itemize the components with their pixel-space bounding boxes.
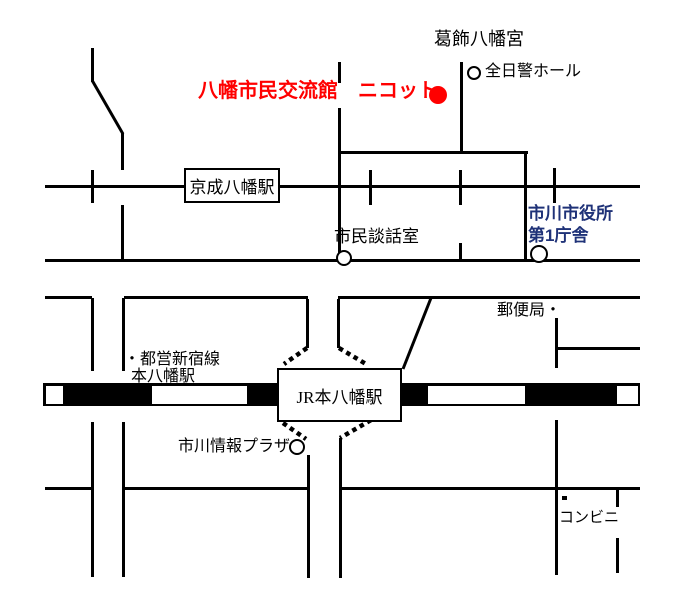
- post-office-branch-road: [557, 347, 640, 350]
- bend-street-diagonal: [93, 81, 124, 134]
- cross-tick-a1: [91, 170, 94, 203]
- road-d-west: [45, 487, 93, 490]
- road-a: [45, 185, 640, 188]
- label-toei-shinjuku-line: ・都営新宿線: [124, 351, 220, 369]
- cross-tick-b1: [459, 243, 462, 262]
- jr-entrance-dotted-ne: [339, 348, 366, 364]
- conbini-street-lower: [616, 538, 619, 573]
- rail-cap-right: [638, 383, 641, 406]
- road-c-west: [45, 296, 92, 299]
- jr-entrance-dotted-se: [340, 420, 371, 438]
- label-conbini: コンビニ: [559, 510, 619, 527]
- label-moto-yawata-station: 本八幡駅: [131, 368, 195, 386]
- shrine-street-east: [460, 62, 463, 154]
- station-corridor-left-upper: [306, 299, 309, 348]
- cross-tick-a2: [369, 170, 372, 205]
- road-d-mid: [125, 487, 308, 490]
- joho-plaza-circle: [289, 439, 305, 455]
- shimin-danwashitsu-circle: [336, 250, 352, 266]
- bend-street-lower: [121, 205, 124, 262]
- conbini-street-upper: [616, 490, 619, 507]
- station-corridor-right-upper: [337, 299, 340, 348]
- map-canvas: 京成八幡駅JR本八幡駅葛飾八幡宮全日警ホール八幡市民交流館 ニコット市民談話室市…: [0, 0, 700, 610]
- cross-tick-a3: [459, 170, 462, 205]
- jr-entrance-dotted-sw: [283, 423, 306, 439]
- bend-street-mid: [121, 133, 124, 170]
- label-ichikawa-city-hall: 市川市役所 第1庁舎: [528, 203, 613, 247]
- post-office-street-lower: [555, 420, 558, 575]
- keisei-yawata-station-box: 京成八幡駅: [184, 168, 280, 203]
- west-corridor-left-upper: [91, 298, 94, 371]
- city-hall-circle: [530, 245, 548, 263]
- road-c-mid: [124, 296, 308, 299]
- label-nicot-title: 八幡市民交流館 ニコット: [198, 80, 438, 103]
- label-ichikawa-joho-plaza: 市川情報プラザ: [178, 438, 290, 456]
- road-d-east: [341, 487, 640, 490]
- west-corridor-right-lower: [122, 422, 125, 577]
- post-office-street-upper: [555, 318, 558, 368]
- bend-street-top: [91, 48, 94, 82]
- west-corridor-left-lower: [91, 422, 94, 577]
- cross-tick-a4: [553, 168, 556, 203]
- station-corridor-right-lower: [339, 438, 342, 578]
- jr-moto-yawata-station-box-label: JR本八幡駅: [297, 383, 383, 408]
- keisei-yawata-station-box-label: 京成八幡駅: [190, 173, 275, 198]
- road-c-east: [338, 296, 640, 299]
- jr-entrance-dotted-nw: [284, 348, 307, 364]
- rail-cap-left: [43, 383, 46, 406]
- label-post-office: 郵便局・: [497, 302, 561, 320]
- conbini-marker-dot: [562, 496, 567, 500]
- zennikkei-hall-circle: [467, 66, 481, 80]
- label-shimin-danwashitsu: 市民談話室: [334, 227, 419, 247]
- label-zennikkei-hall: 全日警ホール: [485, 63, 581, 81]
- rail-black-3: [525, 386, 617, 404]
- jr-moto-yawata-station-box: JR本八幡駅: [277, 368, 402, 422]
- jr-northeast-diagonal: [403, 298, 431, 369]
- station-corridor-left-lower: [307, 455, 310, 578]
- rail-black-1: [63, 386, 152, 404]
- shrine-block-top-road: [338, 151, 528, 154]
- label-katsushika-hachimangu: 葛飾八幡宮: [434, 29, 524, 50]
- block-street-east: [524, 151, 527, 262]
